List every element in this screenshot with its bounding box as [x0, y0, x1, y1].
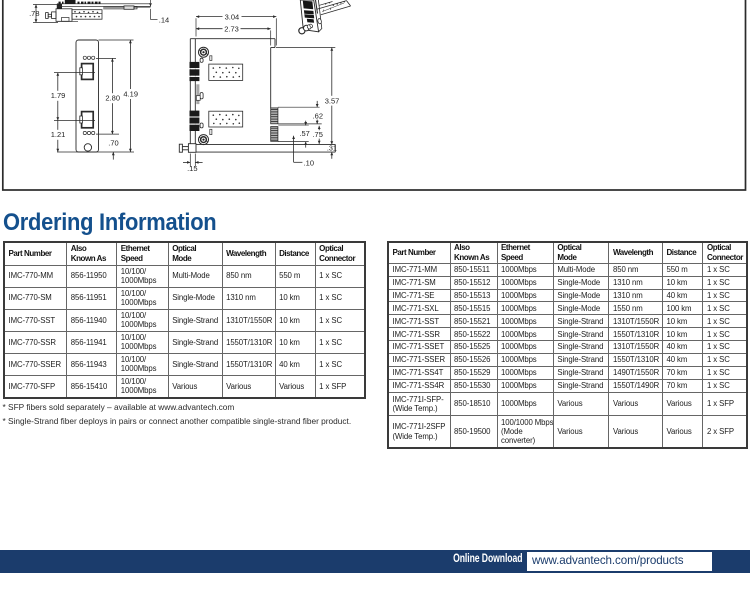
svg-text:.57: .57: [299, 129, 309, 138]
svg-text:.14: .14: [159, 15, 169, 24]
svg-text:.62: .62: [313, 111, 323, 120]
svg-text:.10: .10: [304, 158, 314, 167]
svg-text:.70: .70: [108, 138, 118, 147]
svg-text:.31: .31: [327, 143, 337, 152]
svg-text:.15: .15: [187, 164, 197, 173]
svg-text:2.80: 2.80: [105, 94, 120, 103]
svg-text:1.79: 1.79: [51, 91, 66, 100]
svg-text:4.19: 4.19: [123, 89, 138, 98]
svg-text:.75: .75: [312, 130, 322, 139]
svg-text:2.73: 2.73: [224, 25, 239, 34]
svg-text:3.57: 3.57: [325, 96, 340, 105]
svg-text:3.04: 3.04: [225, 12, 240, 21]
svg-text:1.21: 1.21: [51, 130, 66, 139]
svg-text:.78: .78: [29, 9, 39, 18]
